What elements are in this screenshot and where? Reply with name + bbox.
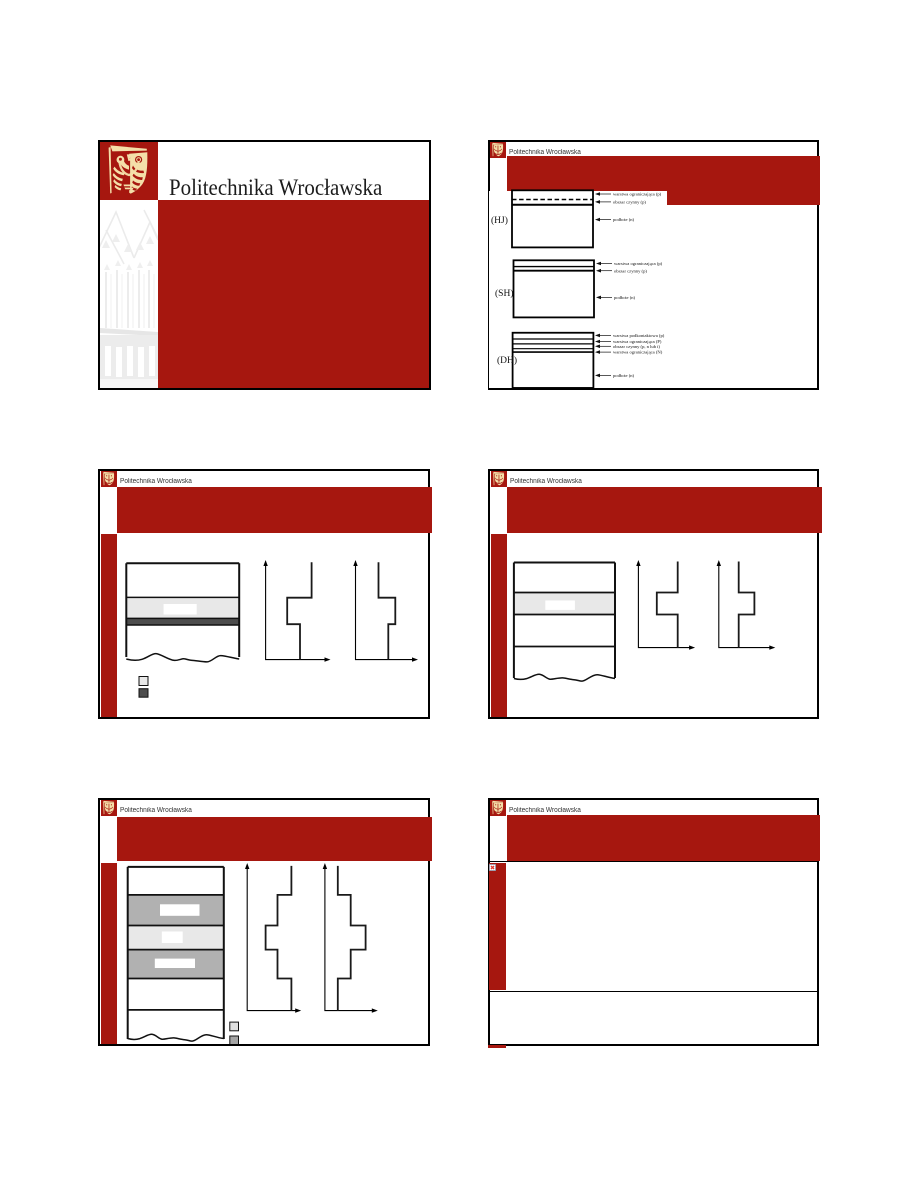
svg-text:podłoże (n): podłoże (n) [614,295,636,300]
svg-text:podłoże (n): podłoże (n) [613,373,635,378]
svg-text:warstwa ograniczająca (p): warstwa ograniczająca (p) [614,261,663,266]
svg-text:(DH): (DH) [497,355,517,366]
svg-text:obszar czynny (p): obszar czynny (p) [613,200,646,205]
svg-text:podłoże (n): podłoże (n) [613,217,635,222]
svg-text:(SH): (SH) [495,288,513,299]
svg-text:obszar czynny (p): obszar czynny (p) [614,268,647,273]
svg-text:(HJ): (HJ) [491,215,508,226]
svg-text:warstwa ograniczająca (N): warstwa ograniczająca (N) [613,350,663,355]
svg-text:warstwa ograniczająca (p): warstwa ograniczająca (p) [613,192,662,197]
svg-text:warstwa podkontaktowa (p): warstwa podkontaktowa (p) [613,333,665,338]
